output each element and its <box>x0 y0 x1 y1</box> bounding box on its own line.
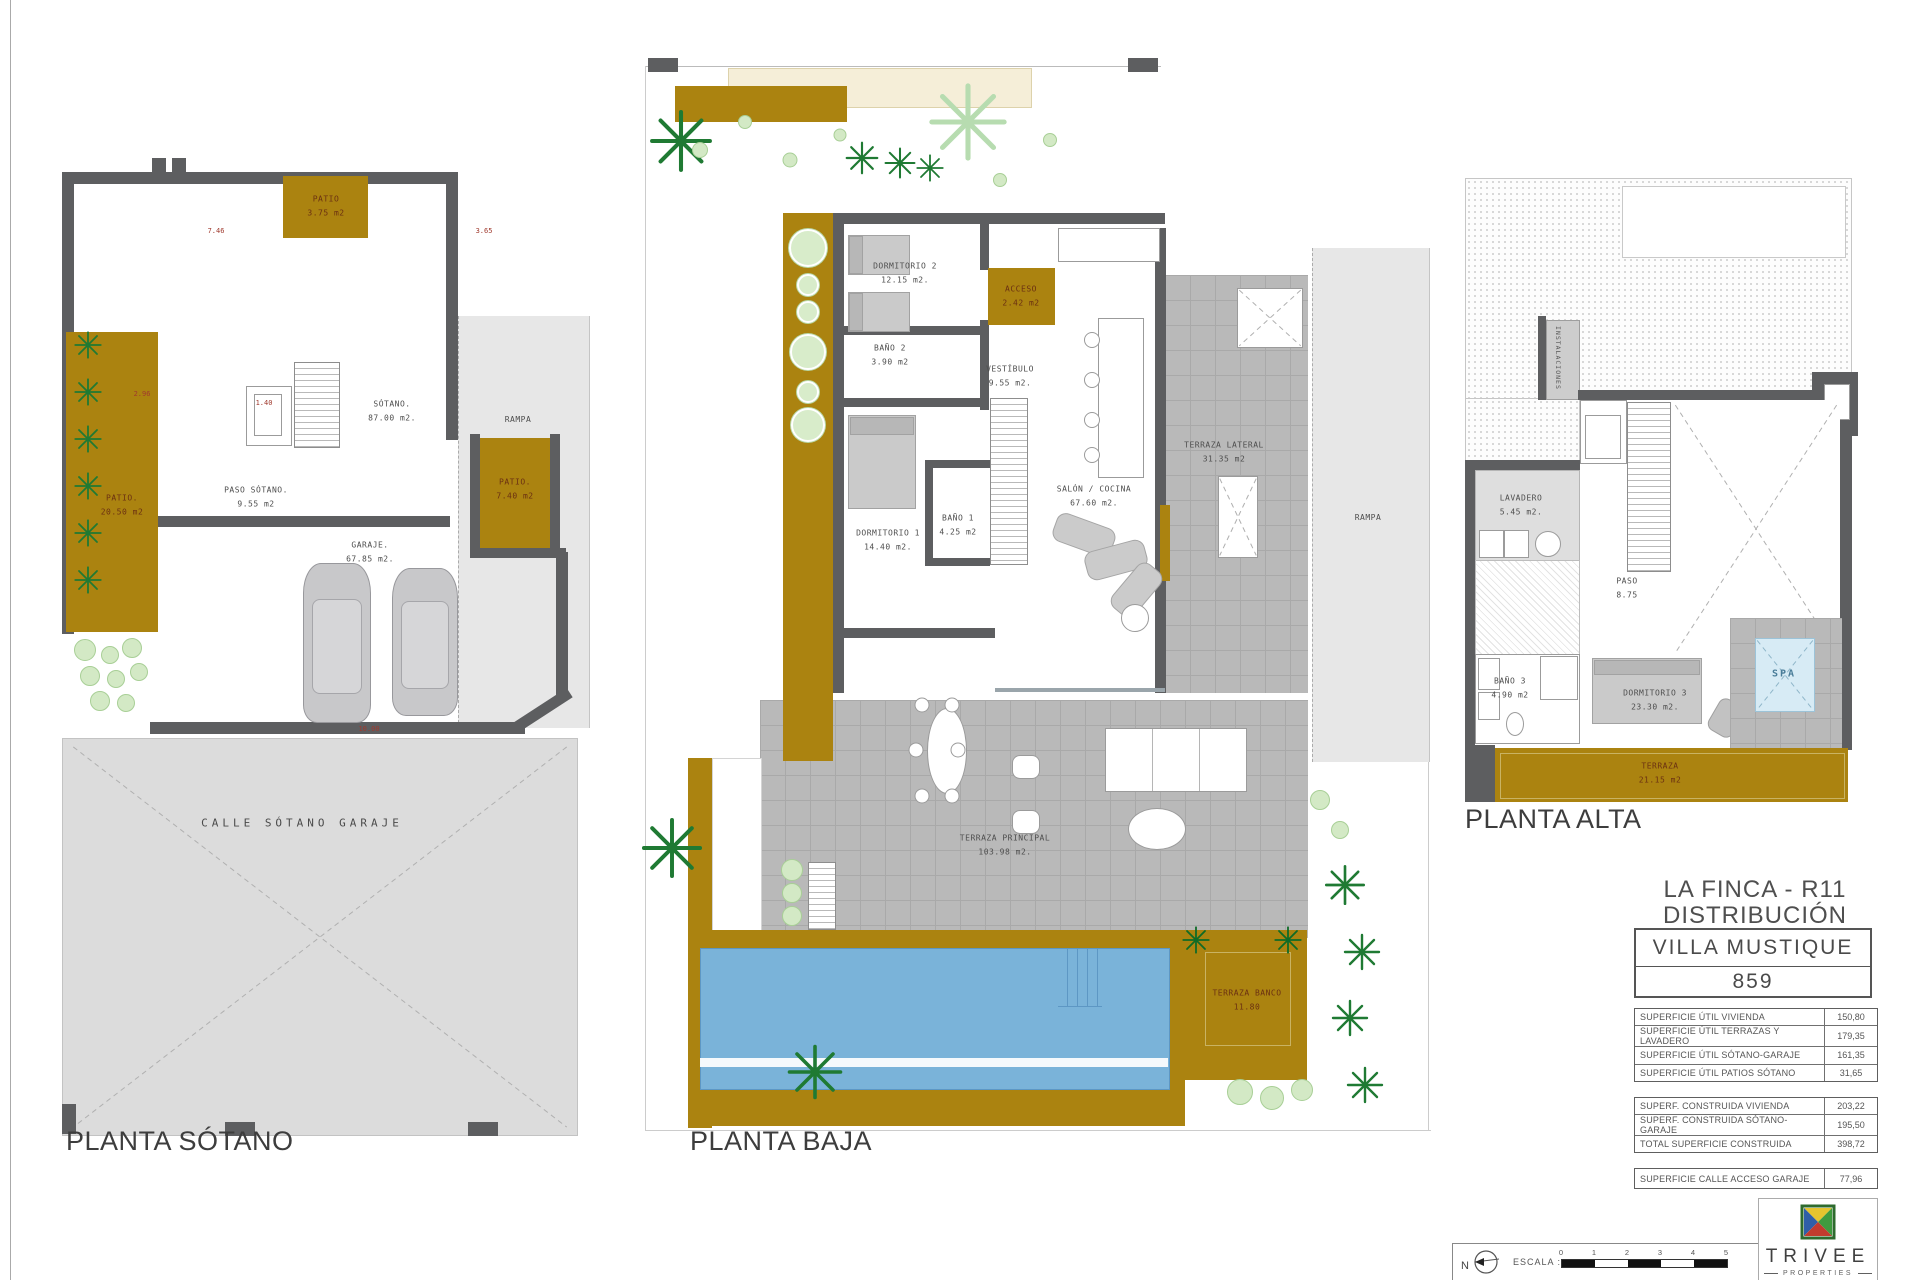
stairs-baja <box>990 398 1028 565</box>
wall-stub <box>152 158 166 174</box>
stool-icon <box>1084 412 1100 428</box>
wall-interior <box>925 460 990 468</box>
room-label-patio-left: PATIO.20.50 m2 <box>101 491 144 518</box>
escala-label: ESCALA : <box>1513 1257 1561 1267</box>
scale-segments <box>1561 1259 1728 1268</box>
wall-stub <box>172 158 186 174</box>
room-label-paso: PASO8.75 <box>1616 574 1637 601</box>
chair-icon <box>945 698 960 713</box>
table-row: SUPERFICIE ÚTIL SÓTANO-GARAJE161,35 <box>1635 1046 1877 1063</box>
wall <box>550 434 560 558</box>
table-row: SUPERF. CONSTRUIDA SÓTANO-GARAJE195,50 <box>1635 1114 1877 1135</box>
palm-tree-icon <box>1181 925 1211 955</box>
room-label-calle: CALLE SÓTANO GARAJE <box>201 817 403 830</box>
table-cell-value: 77,96 <box>1824 1169 1877 1188</box>
room-label-bano1: BAÑO 14.25 m2 <box>939 511 976 538</box>
trivee-logo-icon <box>1800 1204 1836 1240</box>
room-label-instalaciones: INSTALACIONES <box>1554 326 1562 390</box>
room-label-patio-top: PATIO3.75 m2 <box>307 192 344 219</box>
appliance-icon <box>1504 530 1529 558</box>
chair-icon <box>909 743 924 758</box>
street-area <box>62 738 578 1136</box>
surface-table-util: SUPERFICIE ÚTIL VIVIENDA150,80 SUPERFICI… <box>1634 1008 1878 1082</box>
table-cell-value: 398,72 <box>1824 1136 1877 1152</box>
closet-box <box>1585 415 1621 459</box>
table-row: SUPERFICIE CALLE ACCESO GARAJE77,96 <box>1635 1169 1877 1188</box>
table-row: SUPERFICIE ÚTIL PATIOS SÓTANO31,65 <box>1635 1064 1877 1081</box>
table-row: SUPERFICIE ÚTIL VIVIENDA150,80 <box>1635 1009 1877 1025</box>
project-name-line1: LA FINCA - R11 <box>1625 876 1885 904</box>
room-label-patio-right: PATIO.7.40 m2 <box>496 475 533 502</box>
room-label-acceso: ACCESO2.42 m2 <box>1002 282 1039 309</box>
wall <box>470 434 480 556</box>
room-label-salon: SALÓN / COCINA67.60 m2. <box>1057 482 1131 509</box>
bush-icon <box>74 639 96 661</box>
car-roof <box>312 599 362 694</box>
dimension-text: 3.65 <box>476 227 493 235</box>
outdoor-sofa <box>1105 728 1247 792</box>
bush-icon <box>783 153 798 168</box>
wardrobe-area <box>1475 560 1580 656</box>
wall <box>833 213 1165 224</box>
wall-interior <box>155 516 450 527</box>
bush-icon <box>692 142 708 158</box>
wall <box>833 213 844 693</box>
planter-circle <box>797 381 819 403</box>
appliance-icon <box>1479 530 1504 558</box>
palm-tree-icon <box>73 330 103 360</box>
room-label-lavadero: LAVADERO5.45 m2. <box>1500 491 1543 518</box>
dimension-text: 7.46 <box>208 227 225 235</box>
toilet-icon <box>1506 712 1524 736</box>
bush-icon <box>781 859 803 881</box>
room-label-vestibulo: VESTÍBULO9.55 m2. <box>986 362 1034 389</box>
scale-tick: 2 <box>1625 1248 1629 1257</box>
scale-tick: 0 <box>1559 1248 1563 1257</box>
bush-icon <box>782 883 802 903</box>
surface-table-calle: SUPERFICIE CALLE ACCESO GARAJE77,96 <box>1634 1168 1878 1189</box>
stairs-alta <box>1627 402 1671 572</box>
bush-icon <box>1291 1079 1313 1101</box>
wall <box>1538 316 1546 400</box>
wall <box>556 552 568 700</box>
room-label-rampa-baja: RAMPA <box>1355 511 1382 525</box>
table-cell-value: 150,80 <box>1824 1009 1877 1025</box>
car-icon <box>392 568 458 716</box>
pouf <box>1012 810 1040 834</box>
room-label-spa: SPA <box>1772 666 1796 683</box>
rampa-area-baja <box>1312 248 1430 762</box>
bush-icon <box>130 663 148 681</box>
room-label-terraza-lateral: TERRAZA LATERAL31.35 m2 <box>1184 438 1264 465</box>
wall <box>1578 390 1850 400</box>
palm-tree-icon <box>1323 863 1367 907</box>
table-cell-label: SUPERFICIE ÚTIL VIVIENDA <box>1635 1009 1824 1025</box>
chair-icon <box>915 789 930 804</box>
chair-icon <box>945 789 960 804</box>
plot-line <box>645 66 1161 67</box>
table-row: SUPERFICIE ÚTIL TERRAZAS Y LAVADERO179,3… <box>1635 1025 1877 1046</box>
logo-name: TRIVEE <box>1759 1246 1877 1268</box>
wall-interior <box>980 224 989 270</box>
scale-tick: 1 <box>1592 1248 1596 1257</box>
palm-tree-icon <box>1345 1065 1385 1105</box>
kitchen-counter <box>1058 228 1160 262</box>
scale-box: N ESCALA : 0 1 2 3 4 5 <box>1452 1243 1760 1280</box>
wall-interior <box>925 558 990 566</box>
bush-icon <box>80 666 100 686</box>
bush-icon <box>117 694 135 712</box>
pool-lane-line <box>700 1058 1168 1067</box>
shower-icon <box>1540 656 1578 700</box>
dimension-text: 10.00 <box>358 725 379 733</box>
bush-icon <box>738 115 752 129</box>
scale-bar: 0 1 2 3 4 5 <box>1561 1248 1726 1270</box>
wall <box>470 548 566 558</box>
room-label-dormitorio2: DORMITORIO 212.15 m2. <box>873 259 937 286</box>
side-table-icon <box>1121 604 1149 632</box>
palm-tree-icon <box>915 153 945 183</box>
equipment-pad <box>1237 288 1303 348</box>
dimension-text: 2.96 <box>134 390 151 398</box>
plan-title-sotano: PLANTA SÓTANO <box>66 1126 294 1157</box>
table-cell-label: SUPERFICIE ÚTIL TERRAZAS Y LAVADERO <box>1635 1026 1824 1046</box>
compass-icon <box>1471 1247 1501 1277</box>
chair-icon <box>951 743 966 758</box>
room-label-dormitorio3: DORMITORIO 323.30 m2. <box>1623 686 1687 713</box>
car-icon <box>303 563 371 723</box>
table-cell-label: SUPERF. CONSTRUIDA VIVIENDA <box>1635 1098 1824 1114</box>
palm-tree-icon <box>639 815 705 881</box>
pool-steps <box>1058 948 1102 1007</box>
planter-circle <box>790 334 826 370</box>
table-cell-label: SUPERFICIE CALLE ACCESO GARAJE <box>1635 1169 1824 1188</box>
equipment-pad <box>1218 476 1258 558</box>
table-cell-value: 195,50 <box>1824 1115 1877 1135</box>
palm-tree-icon <box>883 146 917 180</box>
garden-steps <box>808 862 836 930</box>
table-cell-label: SUPERFICIE ÚTIL SÓTANO-GARAJE <box>1635 1047 1824 1063</box>
palm-tree-icon <box>73 377 103 407</box>
chair-icon <box>915 698 930 713</box>
glass-wall <box>995 688 1165 692</box>
villa-box: VILLA MUSTIQUE 859 <box>1634 928 1872 998</box>
upper-roof-panel <box>1622 186 1846 258</box>
palm-tree-icon <box>1342 932 1382 972</box>
table-cell-label: SUPERF. CONSTRUIDA SÓTANO-GARAJE <box>1635 1115 1824 1135</box>
gold-wall-accent <box>1160 505 1170 581</box>
planter-circle <box>789 229 827 267</box>
palm-tree-icon <box>73 424 103 454</box>
villa-name: VILLA MUSTIQUE <box>1636 930 1870 967</box>
room-label-terraza-principal: TERRAZA PRINCIPAL103.98 m2. <box>960 831 1050 858</box>
table-cell-label: SUPERFICIE ÚTIL PATIOS SÓTANO <box>1635 1065 1824 1081</box>
palm-tree-icon <box>1330 998 1370 1038</box>
washer-icon <box>1535 531 1561 557</box>
bush-icon <box>122 638 142 658</box>
table-row: SUPERF. CONSTRUIDA VIVIENDA203,22 <box>1635 1098 1877 1114</box>
bush-icon <box>1227 1079 1253 1105</box>
bush-icon <box>1310 790 1330 810</box>
surface-table-construida: SUPERF. CONSTRUIDA VIVIENDA203,22 SUPERF… <box>1634 1097 1878 1153</box>
wall <box>446 172 458 440</box>
stool-icon <box>1084 372 1100 388</box>
palm-tree-icon <box>785 1042 845 1102</box>
table-cell-value: 161,35 <box>1824 1047 1877 1063</box>
wall <box>1465 460 1580 470</box>
bush-icon <box>101 646 119 664</box>
room-label-terraza-alta: TERRAZA21.15 m2 <box>1639 759 1682 786</box>
car-roof <box>401 601 450 689</box>
logo-box: TRIVEE PROPERTIES <box>1758 1198 1878 1280</box>
plan-title-alta: PLANTA ALTA <box>1465 804 1642 835</box>
bed-icon <box>848 415 916 509</box>
floorplan-sheet: CALLE SÓTANO GARAJE RAMPA PATIO3.75 m2 P… <box>0 0 1920 1280</box>
palm-tree-icon <box>73 518 103 548</box>
stairs-sotano <box>294 362 340 448</box>
scale-tick: 4 <box>1691 1248 1695 1257</box>
room-label-bano3: BAÑO 34.90 m2 <box>1491 674 1528 701</box>
project-name-line2: DISTRIBUCIÓN <box>1625 902 1885 930</box>
stool-icon <box>1084 332 1100 348</box>
bush-icon <box>993 173 1007 187</box>
table-cell-value: 31,65 <box>1824 1065 1877 1081</box>
wall <box>1155 228 1166 693</box>
scale-tick: 3 <box>1658 1248 1662 1257</box>
wall <box>1465 745 1495 802</box>
table-cell-value: 203,22 <box>1824 1098 1877 1114</box>
bush-icon <box>834 129 847 142</box>
stool-icon <box>1084 447 1100 463</box>
north-label: N <box>1461 1260 1469 1272</box>
bush-icon <box>1043 133 1057 147</box>
walkway <box>712 758 762 932</box>
page-edge-line <box>10 0 11 1280</box>
room-label-paso-sotano: PASO SÓTANO.9.55 m2 <box>224 483 288 510</box>
palm-tree-icon <box>73 471 103 501</box>
coffee-table-icon <box>1128 808 1186 850</box>
wall-stub <box>648 58 678 72</box>
wall <box>1465 460 1475 750</box>
palm-tree-icon <box>73 565 103 595</box>
scale-tick: 5 <box>1724 1248 1728 1257</box>
wall <box>833 628 995 638</box>
logo-subtitle: PROPERTIES <box>1759 1270 1877 1277</box>
planter-circle <box>797 274 819 296</box>
plot-line <box>645 66 646 1130</box>
bush-icon <box>1331 821 1349 839</box>
roof-area <box>1465 398 1580 464</box>
bush-icon <box>107 670 125 688</box>
street-diagonals <box>63 739 577 1135</box>
kitchen-island <box>1098 318 1144 478</box>
palm-tree-icon <box>844 140 880 176</box>
dimension-text: 1.40 <box>256 399 273 407</box>
room-label-bano2: BAÑO 23.90 m2 <box>871 341 908 368</box>
palm-tree-icon <box>647 107 715 175</box>
room-label-sotano: SÓTANO.87.00 m2. <box>368 397 416 424</box>
instalaciones-strip <box>1546 320 1580 400</box>
room-label-dormitorio1: DORMITORIO 114.40 m2. <box>856 526 920 553</box>
pouf <box>1012 755 1040 779</box>
palm-tree-icon <box>926 80 1011 165</box>
wall <box>62 172 458 184</box>
bed-icon <box>848 292 910 332</box>
room-label-garaje: GARAJE.67.85 m2. <box>346 538 394 565</box>
wall-interior <box>843 398 983 407</box>
bush-icon <box>782 906 802 926</box>
wall-interior <box>925 460 933 566</box>
bush-icon <box>1260 1086 1284 1110</box>
table-cell-value: 179,35 <box>1824 1026 1877 1046</box>
room-label-rampa-sotano: RAMPA <box>505 413 532 427</box>
planter-circle <box>797 301 819 323</box>
plan-title-baja: PLANTA BAJA <box>690 1126 872 1157</box>
wall-stub <box>1128 58 1158 72</box>
table-row: TOTAL SUPERFICIE CONSTRUIDA398,72 <box>1635 1135 1877 1152</box>
wall-stub <box>468 1122 498 1136</box>
palm-tree-icon <box>1273 925 1303 955</box>
planter-circle <box>791 408 825 442</box>
wall <box>150 722 525 734</box>
villa-number: 859 <box>1636 967 1870 996</box>
bush-icon <box>90 691 110 711</box>
room-label-terraza-banco: TERRAZA BANCO11.80 <box>1212 986 1281 1013</box>
table-cell-label: TOTAL SUPERFICIE CONSTRUIDA <box>1635 1136 1824 1152</box>
